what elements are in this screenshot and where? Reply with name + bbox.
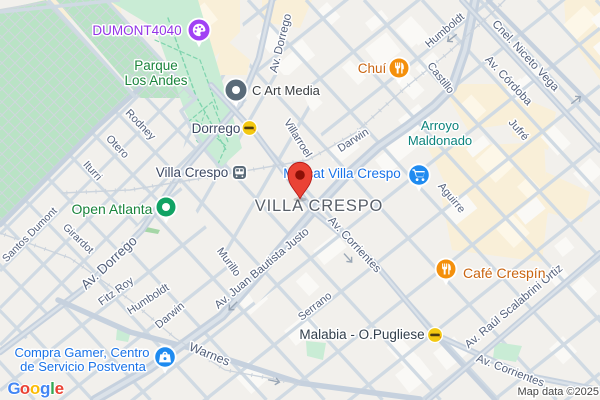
svg-text:Arroyo: Arroyo	[421, 118, 459, 133]
svg-text:g: g	[40, 379, 50, 398]
svg-text:Dorrego: Dorrego	[192, 121, 241, 136]
svg-text:G: G	[8, 379, 21, 398]
svg-text:VILLA CRESPO: VILLA CRESPO	[255, 197, 384, 215]
svg-text:Los Andes: Los Andes	[124, 73, 187, 88]
svg-text:Café Crespín: Café Crespín	[463, 265, 545, 281]
svg-text:e: e	[55, 379, 64, 398]
svg-text:Compra Gamer, Centro: Compra Gamer, Centro	[14, 345, 149, 360]
svg-text:Map data ©2025: Map data ©2025	[518, 386, 600, 398]
svg-text:DUMONT4040: DUMONT4040	[92, 23, 181, 38]
svg-text:de Servicio Postventa: de Servicio Postventa	[20, 359, 147, 374]
svg-text:Villa Crespo: Villa Crespo	[156, 165, 229, 180]
svg-text:Open Atlanta: Open Atlanta	[72, 201, 153, 217]
svg-text:Chuí: Chuí	[358, 61, 387, 76]
svg-text:o: o	[30, 379, 40, 398]
svg-text:C Art Media: C Art Media	[252, 83, 321, 98]
svg-text:Parque: Parque	[134, 58, 178, 73]
svg-text:o: o	[20, 379, 30, 398]
svg-text:Maldonado: Maldonado	[408, 133, 472, 148]
svg-text:Malabia - O.Pugliese: Malabia - O.Pugliese	[299, 327, 424, 342]
